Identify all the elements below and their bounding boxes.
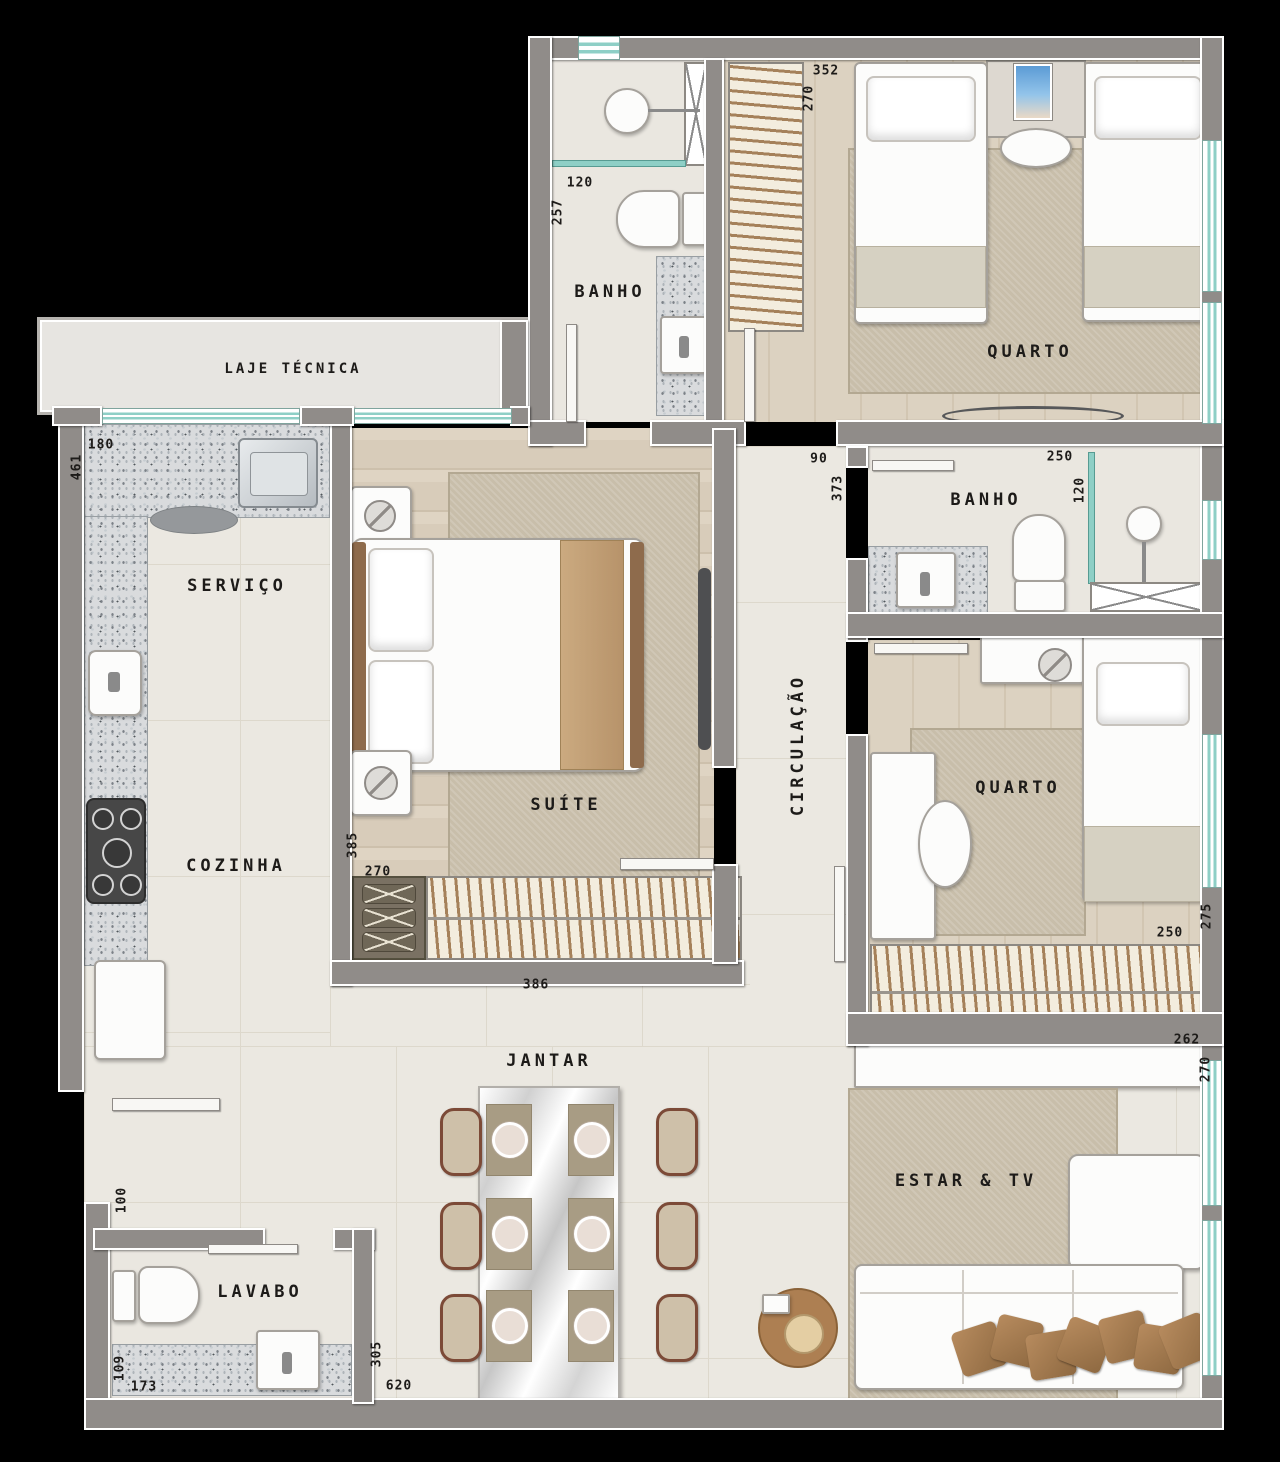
wall: [84, 1398, 1224, 1430]
cooktop: [86, 798, 146, 904]
dim-banho-social-width: 250: [1047, 450, 1073, 465]
wall: [528, 420, 586, 446]
plate: [574, 1122, 610, 1158]
dim-estar-width: 262: [1174, 1033, 1200, 1048]
plate: [574, 1308, 610, 1344]
wall: [352, 1228, 374, 1404]
dim-estar-depth: 270: [1199, 1056, 1214, 1082]
wall: [528, 36, 1224, 60]
dim-lavabo-width: 173: [131, 1380, 157, 1395]
room-label-suite: SUÍTE: [530, 795, 601, 815]
quarto2-blanket: [1084, 826, 1202, 902]
quarto1-bed-right-blanket: [1084, 246, 1212, 308]
window: [354, 408, 512, 424]
dim-servico-width: 180: [88, 438, 114, 453]
wall: [712, 428, 736, 768]
door-leaf-lavabo: [208, 1244, 298, 1254]
dim-circulacao-depth: 373: [831, 475, 846, 501]
floor-plan: LAJE TÉCNICA BANHO QUARTO SERVIÇO COZINH…: [0, 0, 1280, 1462]
dim-sala-depth: 305: [370, 1341, 385, 1367]
shower-head: [1126, 506, 1162, 542]
dining-chair: [656, 1294, 698, 1362]
chaise: [1068, 1154, 1206, 1270]
room-label-lavabo: LAVABO: [217, 1282, 302, 1302]
wall: [704, 58, 724, 422]
door-leaf-suite: [620, 858, 714, 870]
dim-servico-depth: 461: [70, 454, 85, 480]
door-leaf-entry: [112, 1098, 220, 1111]
suite-lamp-top: [364, 500, 396, 532]
window: [1202, 734, 1222, 888]
quarto2-chair: [918, 800, 972, 888]
suite-throw-blanket: [560, 540, 624, 770]
wall: [846, 446, 868, 468]
dim-banho-social-depth: 120: [1073, 477, 1088, 503]
wall: [58, 408, 84, 1092]
faucet: [648, 109, 700, 112]
window: [578, 36, 620, 60]
room-label-laje-tecnica: LAJE TÉCNICA: [224, 361, 361, 377]
wardrobe-rod: [428, 917, 740, 920]
dining-chair: [656, 1202, 698, 1270]
quarto1-bed-right-pillow: [1094, 76, 1202, 140]
window: [1202, 1220, 1222, 1376]
drawer: [362, 932, 416, 952]
lavabo-faucet: [282, 1352, 292, 1374]
window: [102, 408, 300, 424]
dim-circulacao-width: 90: [810, 452, 828, 467]
dim-entrada-width: 100: [115, 1187, 130, 1213]
placemat: [486, 1104, 532, 1176]
banho2-toilet-tank: [1014, 580, 1066, 612]
room-label-estar-tv: ESTAR & TV: [895, 1171, 1037, 1191]
laundry-tank-basin: [250, 452, 308, 496]
lavabo-toilet-bowl: [138, 1266, 200, 1324]
dim-quarto1-width: 352: [813, 64, 839, 79]
shower-glass-door: [552, 160, 686, 167]
dim-quarto2-depth: 275: [1200, 903, 1215, 929]
wall: [846, 734, 868, 1046]
quarto1-lamp: [1000, 128, 1072, 168]
suite-tv: [698, 568, 711, 750]
suite-pillow: [368, 660, 434, 764]
burner: [102, 838, 132, 868]
dim-quarto1-depth: 270: [802, 85, 817, 111]
burner: [92, 874, 114, 896]
placemat: [568, 1290, 614, 1362]
hall-floor: [330, 984, 750, 1048]
banho2-shower-glass: [1088, 452, 1095, 584]
sofa-seam: [860, 1292, 1178, 1294]
dim-sala-width: 620: [386, 1379, 412, 1394]
quarto1-bed-left-blanket: [856, 246, 986, 308]
wall: [846, 1012, 1224, 1046]
drawer: [362, 908, 416, 928]
side-table-book: [762, 1294, 790, 1314]
room-label-quarto-casal: QUARTO: [987, 342, 1072, 362]
wall: [712, 864, 738, 964]
burner: [92, 808, 114, 830]
door-leaf-circulation: [834, 866, 845, 962]
kitchen-sink-faucet: [108, 672, 120, 692]
dining-chair: [440, 1108, 482, 1176]
refrigerator: [94, 960, 166, 1060]
bathroom-sink: [604, 88, 650, 134]
banho2-faucet: [920, 572, 930, 596]
wall: [52, 406, 102, 426]
plate: [492, 1216, 528, 1252]
door-leaf-banho-social: [872, 460, 954, 471]
dim-banho-suite-depth: 257: [551, 199, 566, 225]
dim-suite-depth: 385: [346, 832, 361, 858]
dining-chair: [440, 1202, 482, 1270]
room-label-jantar: JANTAR: [506, 1051, 591, 1071]
room-label-circulacao: CIRCULAÇÃO: [788, 674, 808, 816]
placemat: [486, 1198, 532, 1270]
quarto2-lamp: [1038, 648, 1072, 682]
lavabo-toilet-tank: [112, 1270, 136, 1322]
suite-bed-rail-left: [352, 542, 366, 768]
banho2-toilet-bowl: [1012, 514, 1066, 582]
vanity-faucet: [679, 336, 689, 358]
suite-wardrobe-drawers: [352, 876, 426, 960]
burner: [120, 808, 142, 830]
wall: [330, 408, 352, 986]
room-label-banho-suite: BANHO: [574, 282, 645, 302]
side-table-lamp: [784, 1314, 824, 1354]
wardrobe-rod: [872, 991, 1202, 994]
wall: [300, 406, 354, 426]
quarto2-pillow: [1096, 662, 1190, 726]
toilet-bowl: [616, 190, 680, 248]
plate: [492, 1122, 528, 1158]
suite-wardrobe: [426, 876, 742, 960]
quarto1-bed-left-pillow: [866, 76, 976, 142]
room-label-cozinha: COZINHA: [186, 856, 286, 876]
dim-suite-width-b: 386: [523, 978, 549, 993]
shower-floor: [1090, 582, 1202, 612]
dim-suite-width-a: 270: [365, 865, 391, 880]
wall: [510, 406, 530, 426]
placemat: [486, 1290, 532, 1362]
dining-chair: [656, 1108, 698, 1176]
suite-lamp-bottom: [364, 766, 398, 800]
dim-banho-suite-width: 120: [567, 176, 593, 191]
quarto1-wardrobe: [728, 62, 804, 332]
wall: [500, 320, 528, 420]
room-label-banho-social: BANHO: [950, 490, 1021, 510]
wall: [836, 420, 1224, 446]
door-leaf-quarto2: [874, 643, 968, 654]
suite-pillow: [368, 548, 434, 652]
dim-lavabo-depth: 109: [113, 1355, 128, 1381]
dim-quarto2-width: 250: [1157, 926, 1183, 941]
room-label-quarto-solteiro: QUARTO: [975, 778, 1060, 798]
room-label-servico: SERVIÇO: [187, 576, 287, 596]
plate: [492, 1308, 528, 1344]
wall: [528, 36, 552, 446]
window: [1202, 302, 1222, 424]
wall: [846, 612, 1224, 638]
burner: [120, 874, 142, 896]
dining-chair: [440, 1294, 482, 1362]
washing-machine: [150, 506, 238, 534]
plate: [574, 1216, 610, 1252]
suite-bed-rail-right: [630, 542, 644, 768]
window: [1202, 140, 1222, 292]
drawer: [362, 884, 416, 904]
quarto1-tablet: [1014, 64, 1052, 120]
placemat: [568, 1104, 614, 1176]
door-leaf-quarto1: [744, 328, 755, 422]
window: [1202, 500, 1222, 560]
placemat: [568, 1198, 614, 1270]
door-leaf-banho-suite: [566, 324, 577, 422]
